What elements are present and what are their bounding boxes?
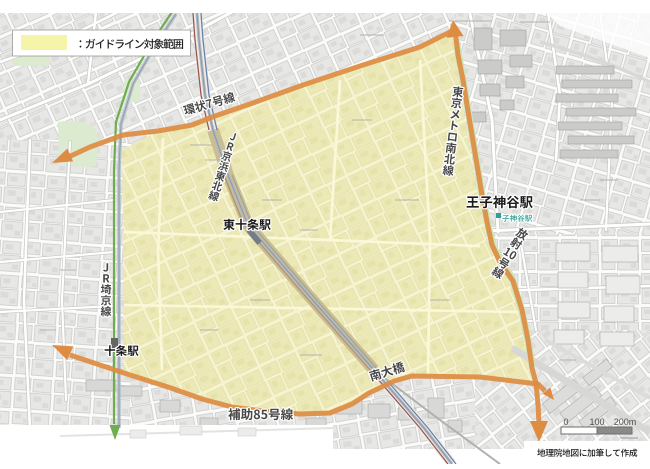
svg-text:200m: 200m xyxy=(614,417,637,427)
svg-text:0: 0 xyxy=(563,417,568,427)
svg-text:100: 100 xyxy=(589,417,604,427)
